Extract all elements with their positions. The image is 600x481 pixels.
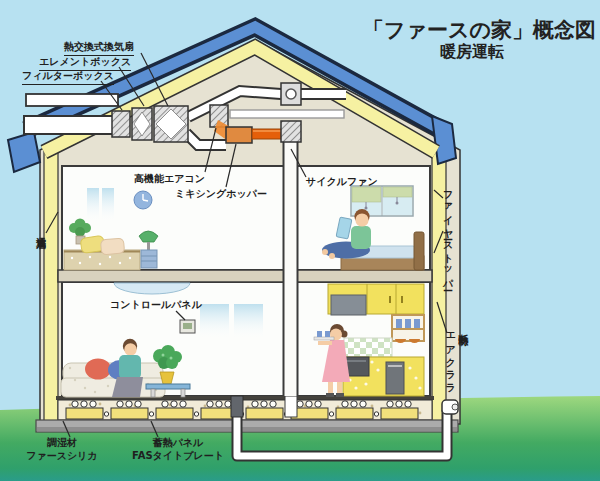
pillow	[100, 238, 124, 255]
label-high-function-aircon: 高機能エアコン	[134, 173, 205, 186]
dishwasher	[386, 362, 404, 394]
range-hood	[331, 295, 366, 315]
ceiling-rail-duct	[230, 110, 344, 118]
side-table	[146, 384, 190, 389]
label-heat-storage-panel: 蓄熱パネル FASタイトプレート	[124, 437, 232, 462]
label-mixing-hopper: ミキシングホッパー	[175, 188, 267, 201]
element-box-unit	[132, 108, 152, 140]
label-filter-box: フィルターボックス	[22, 70, 114, 85]
label-heat-exchange-fan: 熱交換式換気扇	[64, 41, 134, 56]
diagram-subtitle: 暖房運転	[348, 42, 596, 63]
label-humidity-control-material: 調湿材 ファースシリカ	[16, 437, 108, 462]
kitchen	[314, 284, 424, 397]
tray	[314, 337, 334, 340]
living-curtain	[234, 304, 263, 340]
label-element-box: エレメントボックス	[39, 56, 131, 71]
filter-box-unit	[112, 111, 130, 137]
living-curtain	[200, 304, 229, 340]
label-insulation-material: 断熱材 エアクララ	[444, 326, 470, 388]
label-ventilation-layer: 通気層	[34, 229, 47, 232]
open-shelf	[392, 315, 424, 343]
floor-outlet-box	[231, 396, 243, 417]
diagram-title: 「ファースの家」概念図	[348, 16, 596, 44]
roof-vent-box	[281, 83, 301, 105]
control-panel-device	[180, 320, 195, 333]
bedroom-curtain	[87, 188, 99, 223]
intake-duct	[24, 116, 114, 134]
tile-backsplash	[344, 338, 392, 357]
heat-exchanger-unit	[154, 106, 188, 142]
nightstand-lamp	[139, 231, 158, 268]
duct-shaft-underfloor	[285, 396, 297, 417]
bedroom-curtain	[102, 188, 114, 223]
label-control-panel: コントロールパネル	[110, 299, 202, 312]
foundation-slab	[36, 420, 458, 432]
exhaust-duct	[26, 94, 118, 106]
second-floor-slab	[58, 270, 432, 282]
cushion-red	[85, 359, 111, 380]
duct-shaft	[284, 140, 298, 396]
label-fire-stopper: ファイヤーストッパー	[441, 184, 454, 285]
fas-house-concept-diagram: 「ファースの家」概念図 暖房運転 熱交換式換気扇 エレメントボックス フィルター…	[0, 0, 600, 481]
cycle-fan-unit	[281, 121, 301, 142]
mixing-hopper-unit	[226, 127, 252, 143]
label-cycle-fan: サイクルファン	[306, 176, 378, 189]
sofa	[61, 359, 165, 398]
wall-clock	[134, 191, 152, 209]
left-wall-insulation	[44, 150, 58, 424]
